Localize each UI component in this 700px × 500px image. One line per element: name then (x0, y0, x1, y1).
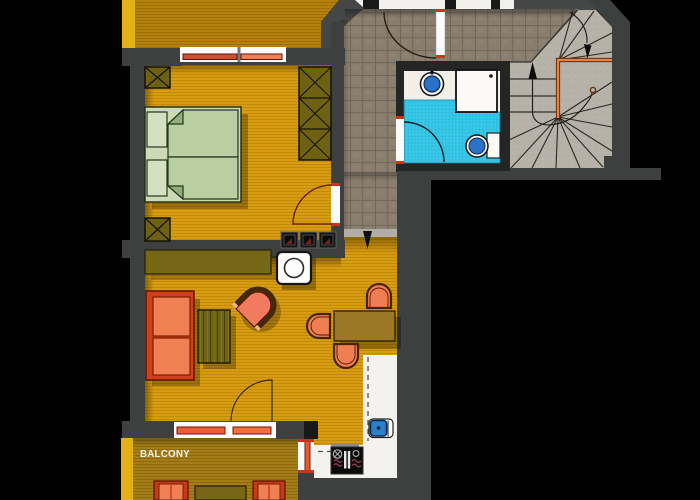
svg-text:BALCONY: BALCONY (140, 449, 190, 460)
